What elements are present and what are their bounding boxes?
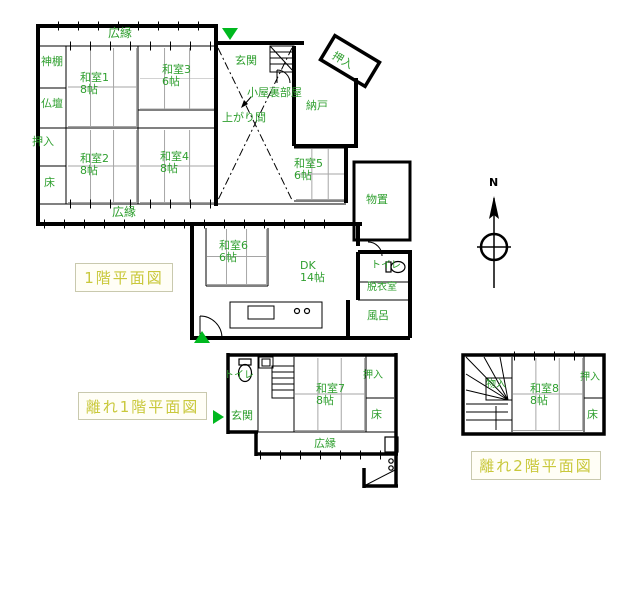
room-label-washitsu3: 和室3 6帖 [162,64,191,87]
room-label-butsudan: 仏壇 [41,98,63,110]
washitsu6-size: 6帖 [219,252,248,264]
washitsu4-size: 8帖 [160,163,189,175]
plan-title-annex2: 離れ2階平面図 [471,451,601,480]
room-label-genkan: 玄関 [235,55,257,67]
room-label-washitsu6: 和室6 6帖 [219,240,248,263]
room-label-furo: 風呂 [367,310,389,322]
room-label-washitsu5: 和室5 6帖 [294,158,323,181]
annex1-label-tokonoma: 床 [371,409,382,421]
annex2-label-oshiire: 押入 [580,373,600,384]
room-label-monooki: 物置 [366,194,388,206]
washitsu8-size: 8帖 [530,395,559,407]
annex1-label-washitsu7: 和室7 8帖 [316,383,345,406]
room-label-koyaura: 小屋裏部屋 [247,87,302,99]
floor-plan-canvas: 広縁 神棚 仏壇 押入 床 和室1 8帖 和室3 6帖 和室2 8帖 和室4 8… [0,0,640,599]
stove-burner-icon [305,309,310,314]
annex2-label-tokonoma: 床 [587,409,598,421]
room-label-dk: DK 14帖 [300,260,325,283]
room-label-washitsu4: 和室4 8帖 [160,151,189,174]
washitsu7-size: 8帖 [316,395,345,407]
room-label-agarima: 上がり間 [222,112,266,124]
washitsu1-size: 8帖 [80,84,109,96]
room-label-datsuishitsu: 脱衣室 [367,283,397,294]
room-label-toilet: トイレ [371,261,401,272]
plan-title-floor1: 1階平面図 [75,263,173,292]
annex2-stairs [466,357,508,430]
compass-icon [477,196,511,288]
entrance-marker-down-icon [222,28,238,40]
stove-burner-icon [295,309,300,314]
washitsu3-size: 6帖 [162,76,191,88]
dk-size: 14帖 [300,272,325,284]
room-label-tokonoma-left: 床 [44,177,55,189]
compass-north-label: N [489,176,498,189]
wall-tick-marks [44,26,582,455]
room-label-kamidana: 神棚 [41,56,63,68]
room-label-veranda-top: 広縁 [108,27,132,40]
entrance-marker-right-icon [213,410,224,424]
washitsu5-size: 6帖 [294,170,323,182]
annex1-label-toilet: トイレ [224,371,254,382]
annex1-kitchenette-icons [364,437,398,486]
annex2-label-washitsu8: 和室8 8帖 [530,383,559,406]
room-label-nando: 納戸 [306,100,328,112]
room-label-washitsu1: 和室1 8帖 [80,72,109,95]
annex1-label-genkan: 玄関 [231,410,253,422]
annex1-label-veranda: 広縁 [314,438,336,450]
annex2-label-monoire: 物入 [486,380,506,391]
room-label-veranda-bottom: 広縁 [112,206,136,219]
washitsu2-size: 8帖 [80,165,109,177]
room-label-oshiire-left: 押入 [32,136,54,148]
plan-title-annex1: 離れ1階平面図 [78,392,207,420]
room-label-washitsu2: 和室2 8帖 [80,153,109,176]
annex1-label-oshiire: 押入 [363,371,383,382]
